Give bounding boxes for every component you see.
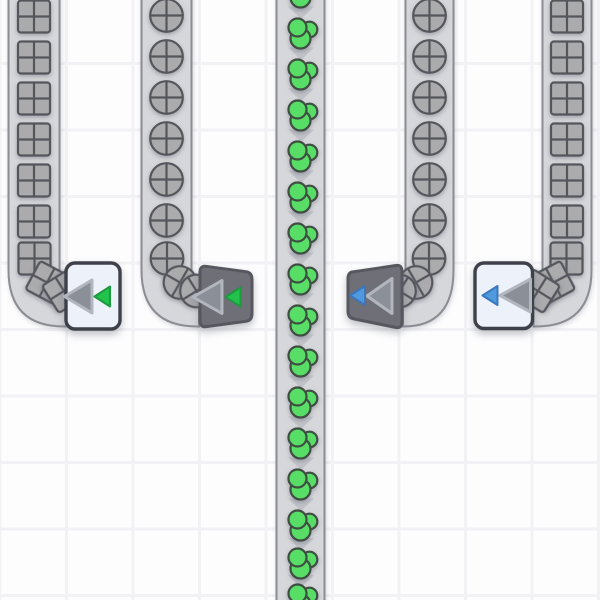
item-circle [413,122,446,155]
item-circle [413,40,446,73]
item-square [551,42,583,74]
item-square [551,83,583,115]
item-circle [150,204,183,237]
item-square [18,124,50,156]
item-square [18,83,50,115]
item-square [551,124,583,156]
item-circle [150,163,183,196]
item-square [18,165,50,197]
item-circle [150,0,183,32]
item-circle [413,81,446,114]
item-circle [413,0,446,32]
belt-tunnel-light-blue[interactable] [475,263,533,329]
belt-tunnel-dark-blue[interactable] [348,265,402,327]
belt-tunnel-light-green[interactable] [65,263,121,329]
item-square [551,165,583,197]
item-square [551,1,583,33]
game-viewport[interactable] [0,0,600,600]
item-square [551,206,583,238]
belt-tunnel-dark-green[interactable] [193,266,252,327]
item-circle [150,40,183,73]
game-canvas [0,0,600,600]
item-circle [413,204,446,237]
item-square [18,1,50,33]
item-square [18,206,50,238]
item-circle [150,81,183,114]
item-square [18,42,50,74]
item-circle [150,122,183,155]
item-circle [413,163,446,196]
